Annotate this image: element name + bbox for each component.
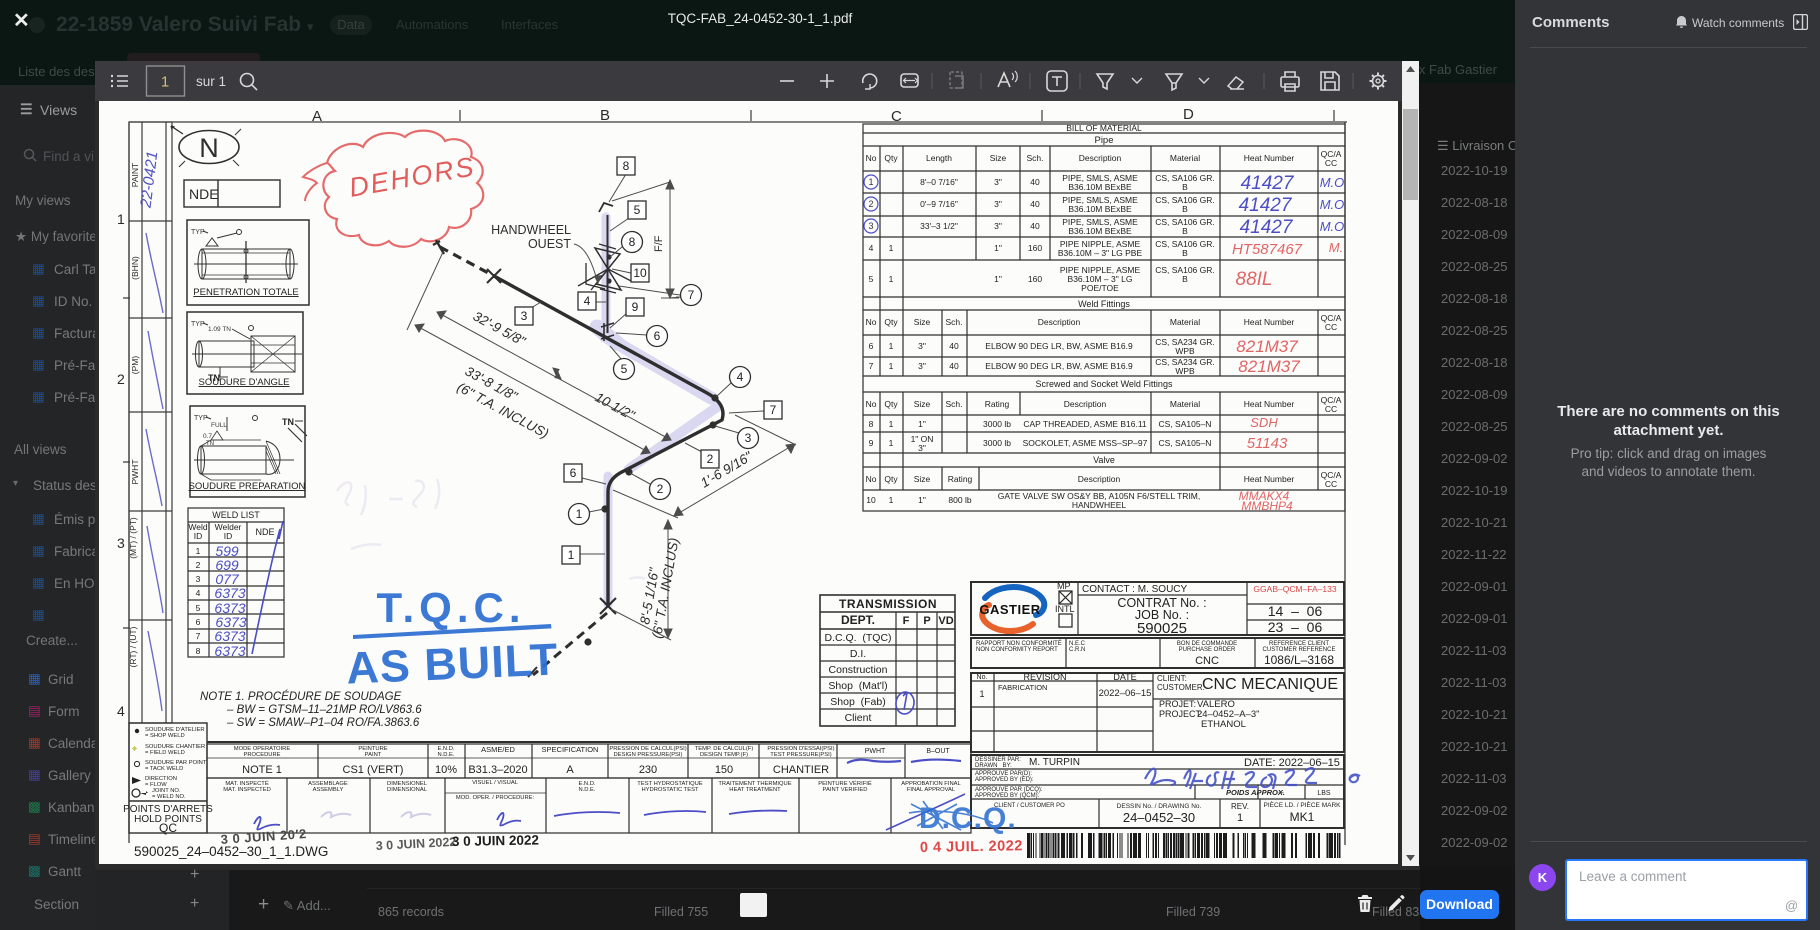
svg-text:Size: Size (914, 399, 931, 409)
svg-text:(BHN): (BHN) (130, 256, 140, 280)
svg-text:160: 160 (1028, 274, 1042, 284)
svg-text:821M37: 821M37 (1236, 337, 1298, 356)
svg-text:3: 3 (521, 309, 528, 323)
svg-text:40: 40 (1030, 177, 1040, 187)
svg-text:PROCEDURE: PROCEDURE (243, 752, 280, 758)
svg-text:PIÈCE LD. / PIÈCE MARK: PIÈCE LD. / PIÈCE MARK (1264, 800, 1342, 809)
svg-text:0'–9 7/16": 0'–9 7/16" (920, 199, 958, 209)
svg-text:1: 1 (568, 548, 575, 562)
svg-text:VD: VD (938, 615, 953, 627)
svg-text:CC: CC (1325, 158, 1337, 168)
svg-text:Size: Size (990, 153, 1007, 163)
svg-text:CAP THREADED, ASME B16.11: CAP THREADED, ASME B16.11 (1023, 419, 1147, 429)
svg-text:= SHOP WELD: = SHOP WELD (145, 733, 185, 739)
svg-text:N.D.E.: N.D.E. (578, 787, 595, 793)
svg-text:160: 160 (1028, 243, 1042, 253)
svg-text:150: 150 (715, 764, 733, 776)
svg-text:Description: Description (1038, 317, 1081, 327)
svg-text:9: 9 (632, 300, 639, 314)
svg-text:5: 5 (869, 274, 874, 284)
svg-text:FABRICATION: FABRICATION (998, 683, 1047, 692)
svg-text:TEST PRESSURE(PSI): TEST PRESSURE(PSI) (770, 752, 831, 758)
svg-text:F/F: F/F (653, 235, 665, 252)
svg-text:No: No (866, 317, 877, 327)
svg-text:7: 7 (688, 288, 695, 302)
svg-text:ELBOW 90 DEG LR, BW, ASME: ELBOW 90 DEG LR, BW, ASME B16.9 (985, 341, 1133, 351)
svg-text:6: 6 (196, 617, 201, 627)
svg-text:40: 40 (949, 341, 959, 351)
svg-text:4: 4 (869, 243, 874, 253)
svg-text:800 lb: 800 lb (948, 495, 971, 505)
svg-text:B–OUT: B–OUT (926, 748, 950, 755)
svg-text:PAINT VERIFIED: PAINT VERIFIED (823, 787, 868, 793)
svg-text:1: 1 (1237, 812, 1243, 824)
svg-text:NOTE 1: NOTE 1 (242, 764, 282, 776)
svg-text:No: No (866, 474, 877, 484)
svg-text:ASSEMBLY: ASSEMBLY (313, 787, 344, 793)
svg-text:Heat Number: Heat Number (1244, 317, 1295, 327)
svg-text:1": 1" (918, 495, 926, 505)
svg-text:TRANSMISSION: TRANSMISSION (839, 597, 937, 611)
svg-text:Construction: Construction (829, 664, 888, 676)
svg-text:Qty: Qty (884, 399, 898, 409)
svg-text:Shop (Fab): Shop (Fab) (830, 696, 885, 708)
svg-text:PAINT: PAINT (130, 163, 140, 187)
svg-text:3": 3" (918, 341, 926, 351)
svg-text:40: 40 (1030, 199, 1040, 209)
svg-text:4: 4 (737, 370, 744, 384)
svg-text:1: 1 (889, 341, 894, 351)
svg-text:B: B (1182, 248, 1188, 258)
svg-text:HANDWHEEL: HANDWHEEL (1072, 500, 1127, 510)
svg-text:3: 3 (868, 221, 873, 231)
svg-text:T.Q.C.: T.Q.C. (376, 584, 525, 631)
svg-text:POIDS APPROX.: POIDS APPROX. (1226, 788, 1285, 797)
svg-text:10: 10 (866, 495, 876, 505)
svg-text:CHANTIER: CHANTIER (773, 764, 829, 776)
svg-text:5: 5 (621, 362, 628, 376)
svg-text:No: No (866, 153, 877, 163)
svg-text:40: 40 (949, 361, 959, 371)
svg-text:Size: Size (914, 317, 931, 327)
svg-text:DATE: DATE (1113, 672, 1136, 682)
svg-text:PWHT: PWHT (865, 748, 886, 755)
svg-text:821M37: 821M37 (1238, 357, 1300, 376)
svg-text:DRAWN BY:: DRAWN BY: (975, 763, 1012, 769)
svg-text:3: 3 (196, 574, 201, 584)
svg-text:14 – 06: 14 – 06 (1268, 603, 1323, 619)
svg-text:No.: No. (977, 674, 988, 681)
svg-text:FULL: FULL (211, 422, 227, 429)
svg-text:1: 1 (889, 274, 894, 284)
svg-text:B: B (600, 107, 610, 124)
svg-text:D.C.Q. (TQC): D.C.Q. (TQC) (824, 632, 891, 644)
svg-text:3": 3" (918, 443, 926, 453)
svg-text:sur 1: sur 1 (196, 74, 226, 89)
svg-text:5: 5 (634, 203, 641, 217)
svg-text:Qty: Qty (884, 153, 898, 163)
svg-text:40: 40 (1030, 221, 1040, 231)
svg-text:PROJET:: PROJET: (1159, 699, 1196, 709)
svg-text:RAPPORT NON CONFORMITÉ: RAPPORT NON CONFORMITÉ (976, 640, 1062, 647)
svg-text:C.R.N: C.R.N (1069, 647, 1085, 653)
svg-text:HYDROSTATIC TEST: HYDROSTATIC TEST (641, 787, 698, 793)
svg-text:D: D (1183, 106, 1194, 123)
svg-text:Qty: Qty (884, 317, 898, 327)
svg-text:GGAB–QCM–FA–133: GGAB–QCM–FA–133 (1253, 584, 1336, 594)
svg-text:B31.3–2020: B31.3–2020 (468, 764, 527, 776)
svg-text:1: 1 (161, 74, 169, 91)
svg-text:9: 9 (869, 438, 874, 448)
svg-text:CUSTOMER:: CUSTOMER: (1157, 683, 1205, 692)
svg-text:3: 3 (117, 535, 125, 551)
svg-text:Sch.: Sch. (945, 317, 962, 327)
svg-text:WPB: WPB (1175, 366, 1195, 376)
svg-text:0 4 JUIL. 2022: 0 4 JUIL. 2022 (920, 838, 1023, 856)
svg-text:1: 1 (576, 507, 583, 521)
svg-text:NON CONFORMITY REPORT: NON CONFORMITY REPORT (976, 647, 1058, 653)
svg-text:CLIENT:: CLIENT: (1157, 674, 1187, 683)
svg-text:= WELD NO.: = WELD NO. (152, 794, 186, 800)
svg-text:PWHT: PWHT (130, 459, 140, 484)
svg-text:23 – 06: 23 – 06 (1268, 619, 1323, 635)
svg-text:B36.10M BExBE: B36.10M BExBE (1068, 204, 1132, 214)
svg-text:P: P (923, 615, 930, 627)
svg-text:51143: 51143 (1247, 435, 1288, 452)
svg-text:ETHANOL: ETHANOL (1201, 719, 1246, 730)
svg-text:REVISION: REVISION (1023, 672, 1066, 682)
svg-text:N.D.E.: N.D.E. (437, 752, 454, 758)
svg-text:41427: 41427 (1241, 173, 1295, 194)
svg-text:8'–0 7/16": 8'–0 7/16" (920, 177, 958, 187)
svg-text:3": 3" (994, 221, 1002, 231)
svg-text:TYP: TYP (194, 415, 208, 422)
svg-text:INTL: INTL (1055, 604, 1075, 614)
svg-text:M.O: M.O (1320, 219, 1345, 234)
svg-text:ASME/ED: ASME/ED (481, 745, 515, 754)
svg-text:SDH: SDH (1250, 415, 1278, 430)
svg-text:QC: QC (159, 821, 177, 835)
svg-text:Description: Description (1078, 474, 1121, 484)
svg-text:3000 lb: 3000 lb (983, 438, 1011, 448)
svg-text:PEINTURE VÉRIFIÉ: PEINTURE VÉRIFIÉ (818, 780, 872, 787)
svg-text:VISUEL / VISUAL: VISUEL / VISUAL (472, 780, 519, 786)
svg-text:7: 7 (770, 403, 777, 417)
svg-text:B: B (1182, 204, 1188, 214)
svg-text:HT587467: HT587467 (1232, 241, 1303, 258)
svg-text:2: 2 (868, 199, 873, 209)
svg-text:AS BUILT: AS BUILT (345, 633, 559, 693)
svg-text:(RT) / (UT): (RT) / (UT) (128, 626, 138, 667)
svg-text:1": 1" (994, 243, 1002, 253)
svg-text:1: 1 (889, 419, 894, 429)
svg-text:3": 3" (918, 361, 926, 371)
svg-text:2: 2 (657, 482, 664, 496)
svg-text:A: A (312, 108, 322, 125)
svg-text:Screwed and Socket Weld Fi: Screwed and Socket Weld Fittings (1036, 379, 1173, 389)
svg-text:MAT. INSPECTÉ: MAT. INSPECTÉ (225, 780, 269, 787)
svg-text:= TACK WELD: = TACK WELD (145, 766, 183, 772)
svg-text:N: N (199, 133, 219, 163)
svg-text:SOUDURE PREPARATION: SOUDURE PREPARATION (189, 481, 306, 492)
svg-text:Pipe: Pipe (1094, 135, 1113, 146)
svg-text:6: 6 (869, 341, 874, 351)
svg-text:1: 1 (889, 438, 894, 448)
svg-text:2: 2 (707, 452, 714, 466)
svg-text:CNC: CNC (1195, 655, 1219, 667)
svg-text:B36.10M BExBE: B36.10M BExBE (1068, 182, 1132, 192)
svg-text:3": 3" (994, 177, 1002, 187)
svg-text:OUEST: OUEST (528, 237, 571, 251)
svg-text:NDE: NDE (189, 186, 219, 202)
svg-text:6373: 6373 (214, 585, 245, 601)
svg-text:SOCKOLET, ASME MSS–SP–97: SOCKOLET, ASME MSS–SP–97 (1023, 438, 1148, 448)
svg-text:M.O: M.O (1320, 197, 1345, 212)
svg-text:6: 6 (654, 329, 661, 343)
svg-text:APPROVED BY (QCM):: APPROVED BY (QCM): (975, 793, 1040, 799)
svg-text:BILL OF MATERIAL: BILL OF MATERIAL (1066, 123, 1142, 133)
svg-text:– BW = GTSM–11–21MP RO/L: – BW = GTSM–11–21MP RO/LV863.6 (226, 704, 422, 716)
svg-text:PROJECT:: PROJECT: (1159, 709, 1203, 719)
svg-text:1086/L–3168: 1086/L–3168 (1264, 653, 1334, 667)
svg-text:TYP: TYP (191, 229, 205, 236)
svg-text:5: 5 (196, 603, 201, 613)
svg-text:– SW = SMAW–P1–04 RO/FA.: – SW = SMAW–P1–04 RO/FA.3863.6 (226, 717, 420, 729)
svg-text:4: 4 (584, 294, 591, 308)
svg-text:MMBHP4: MMBHP4 (1241, 499, 1293, 513)
svg-text:6373: 6373 (214, 628, 245, 644)
svg-text:8: 8 (869, 419, 874, 429)
svg-text:TYP: TYP (191, 321, 205, 328)
svg-text:10%: 10% (435, 764, 457, 776)
svg-text:No: No (866, 399, 877, 409)
svg-text:D.C.Q.: D.C.Q. (919, 802, 1017, 835)
svg-text:1: 1 (889, 361, 894, 371)
svg-text:10: 10 (633, 266, 647, 280)
svg-text:TN: TN (282, 417, 294, 427)
svg-text:Valve: Valve (1093, 455, 1115, 465)
svg-text:Material: Material (1170, 153, 1200, 163)
svg-text:ELBOW 90 DEG LR, BW, ASME: ELBOW 90 DEG LR, BW, ASME B16.9 (985, 361, 1133, 371)
svg-text:C: C (891, 108, 902, 125)
svg-text:TN: TN (208, 373, 220, 383)
svg-text:41427: 41427 (1240, 217, 1294, 238)
svg-text:Length: Length (926, 153, 952, 163)
svg-text:MOD. OPER. / PROCEDURE:: MOD. OPER. / PROCEDURE: (456, 795, 535, 801)
svg-text:Qty: Qty (884, 474, 898, 484)
svg-text:Description: Description (1079, 153, 1122, 163)
svg-text:DESIGN TEMP.(F): DESIGN TEMP.(F) (700, 752, 748, 758)
svg-text:1": 1" (994, 274, 1002, 284)
svg-text:8: 8 (623, 159, 630, 173)
svg-text:= FIELD WELD: = FIELD WELD (145, 750, 185, 756)
svg-text:Rating: Rating (985, 399, 1010, 409)
svg-text:DEHORS: DEHORS (347, 151, 478, 203)
svg-text:1: 1 (117, 211, 125, 227)
svg-text:GASTIER: GASTIER (979, 602, 1040, 617)
svg-text:LBS: LBS (1317, 790, 1331, 797)
svg-text:CC: CC (1325, 479, 1337, 489)
svg-text:MK1: MK1 (1290, 810, 1315, 824)
svg-text:(PM): (PM) (130, 356, 140, 375)
svg-text:6: 6 (570, 466, 577, 480)
svg-text:F: F (903, 615, 910, 627)
svg-text:CS, SA105–N: CS, SA105–N (1159, 419, 1212, 429)
svg-text:Material: Material (1170, 317, 1200, 327)
svg-text:Client: Client (845, 712, 872, 724)
svg-text:NOTE 1. PROCÉDURE DE SOUDA: NOTE 1. PROCÉDURE DE SOUDAGE (200, 690, 402, 703)
svg-text:Sch.: Sch. (945, 399, 962, 409)
svg-text:8: 8 (629, 235, 636, 249)
svg-text:1: 1 (868, 177, 873, 187)
svg-text:Sch.: Sch. (1026, 153, 1043, 163)
svg-text:DESIGN PRESSURE(PSI): DESIGN PRESSURE(PSI) (614, 752, 683, 758)
svg-text:22-0421: 22-0421 (138, 150, 162, 210)
svg-text:POE/TOE: POE/TOE (1081, 283, 1119, 293)
svg-text:6373: 6373 (214, 643, 245, 659)
svg-text:M.O: M.O (1320, 175, 1345, 190)
svg-text:1: 1 (889, 495, 894, 505)
svg-text:WPB: WPB (1175, 346, 1195, 356)
svg-text:ID: ID (194, 531, 203, 541)
svg-text:Heat Number: Heat Number (1244, 153, 1295, 163)
svg-text:0.7: 0.7 (203, 433, 212, 440)
svg-text:7: 7 (196, 631, 201, 641)
svg-text:24–0452–30: 24–0452–30 (1123, 810, 1195, 825)
svg-text:B36.10M BExBE: B36.10M BExBE (1068, 226, 1132, 236)
svg-text:B: B (1182, 182, 1188, 192)
svg-text:230: 230 (639, 764, 657, 776)
svg-text:A: A (566, 764, 574, 776)
svg-text:3000 lb: 3000 lb (983, 419, 1011, 429)
svg-text:2: 2 (117, 371, 125, 387)
svg-text:HEAT TREATMENT: HEAT TREATMENT (729, 787, 781, 793)
svg-text:1: 1 (889, 243, 894, 253)
svg-text:PURCHASE ORDER: PURCHASE ORDER (1179, 647, 1236, 653)
svg-text:1: 1 (979, 689, 984, 699)
svg-text:APPROVED BY (ED):: APPROVED BY (ED): (975, 777, 1034, 783)
svg-text:3 0 JUIN 2022: 3 0 JUIN 2022 (452, 832, 539, 849)
svg-text:3": 3" (994, 199, 1002, 209)
svg-text:Weld Fittings: Weld Fittings (1078, 299, 1130, 309)
svg-text:SPECIFICATION: SPECIFICATION (542, 745, 599, 754)
svg-text:CS1 (VERT): CS1 (VERT) (343, 764, 404, 776)
svg-text:DESSIN No. / DRAWING No.: DESSIN No. / DRAWING No. (1117, 803, 1202, 810)
svg-text:HANDWHEEL: HANDWHEEL (491, 223, 571, 237)
svg-text:Size: Size (914, 474, 931, 484)
svg-text:7: 7 (869, 361, 874, 371)
svg-text:CC: CC (1325, 322, 1337, 332)
svg-text:33'–3 1/2": 33'–3 1/2" (920, 221, 958, 231)
svg-text:1": 1" (918, 419, 926, 429)
svg-text:41427: 41427 (1239, 195, 1293, 216)
svg-text:Rating: Rating (948, 474, 973, 484)
svg-text:B: B (1182, 226, 1188, 236)
svg-text:(MT) / (PT): (MT) / (PT) (128, 517, 138, 559)
svg-text:4: 4 (196, 588, 201, 598)
svg-text:590025_24–0452–30_1_1.DWG: 590025_24–0452–30_1_1.DWG (134, 844, 328, 859)
svg-text:DATE: 2022–06–15: DATE: 2022–06–15 (1244, 757, 1340, 769)
svg-text:CONTACT : M. SOUCY: CONTACT : M. SOUCY (1082, 584, 1188, 595)
svg-text:Heat Number: Heat Number (1244, 399, 1295, 409)
svg-text:MAT. INSPECTED: MAT. INSPECTED (223, 787, 271, 793)
svg-text:B36.10M – 3" LG PBE: B36.10M – 3" LG PBE (1058, 248, 1143, 258)
svg-text:M.: M. (1329, 240, 1343, 255)
svg-text:2022–06–15: 2022–06–15 (1099, 688, 1152, 699)
svg-text:Heat Number: Heat Number (1244, 474, 1295, 484)
svg-text:1.09 TN: 1.09 TN (208, 326, 231, 333)
svg-text:NDE: NDE (255, 527, 274, 537)
svg-text:10 1/2": 10 1/2" (593, 389, 638, 423)
svg-text:DIMENSIONAL: DIMENSIONAL (387, 787, 428, 793)
svg-text:–: – (1278, 787, 1283, 797)
svg-text:B: B (1182, 274, 1188, 284)
svg-text:CC: CC (1325, 404, 1337, 414)
svg-text:8: 8 (196, 646, 201, 656)
svg-text:1: 1 (196, 546, 201, 556)
svg-text:4: 4 (117, 703, 125, 719)
svg-text:REV.: REV. (1231, 802, 1249, 811)
svg-text:88IL: 88IL (1236, 269, 1273, 290)
svg-text:Description: Description (1064, 399, 1107, 409)
svg-text:DEPT.: DEPT. (841, 613, 875, 627)
svg-text:MP: MP (1057, 581, 1071, 591)
svg-text:CS, SA105–N: CS, SA105–N (1159, 438, 1212, 448)
svg-text:CNC MECANIQUE: CNC MECANIQUE (1202, 676, 1338, 693)
svg-text:2: 2 (196, 560, 201, 570)
svg-text:Shop (Mat'l): Shop (Mat'l) (828, 680, 887, 692)
svg-text:3: 3 (745, 431, 752, 445)
svg-text:ID: ID (224, 531, 233, 541)
svg-text:PAINT: PAINT (365, 752, 382, 758)
svg-text:3 0 JUIN 2022: 3 0 JUIN 2022 (375, 835, 456, 853)
svg-text:WELD LIST: WELD LIST (212, 510, 260, 520)
svg-text:M. TURPIN: M. TURPIN (1029, 757, 1080, 768)
svg-text:FINAL APPROVAL: FINAL APPROVAL (907, 787, 956, 793)
svg-text:PENETRATION TOTALE: PENETRATION TOTALE (193, 287, 298, 298)
svg-text:D.I.: D.I. (850, 648, 866, 660)
svg-text:590025: 590025 (1137, 620, 1187, 637)
svg-text:Material: Material (1170, 399, 1200, 409)
